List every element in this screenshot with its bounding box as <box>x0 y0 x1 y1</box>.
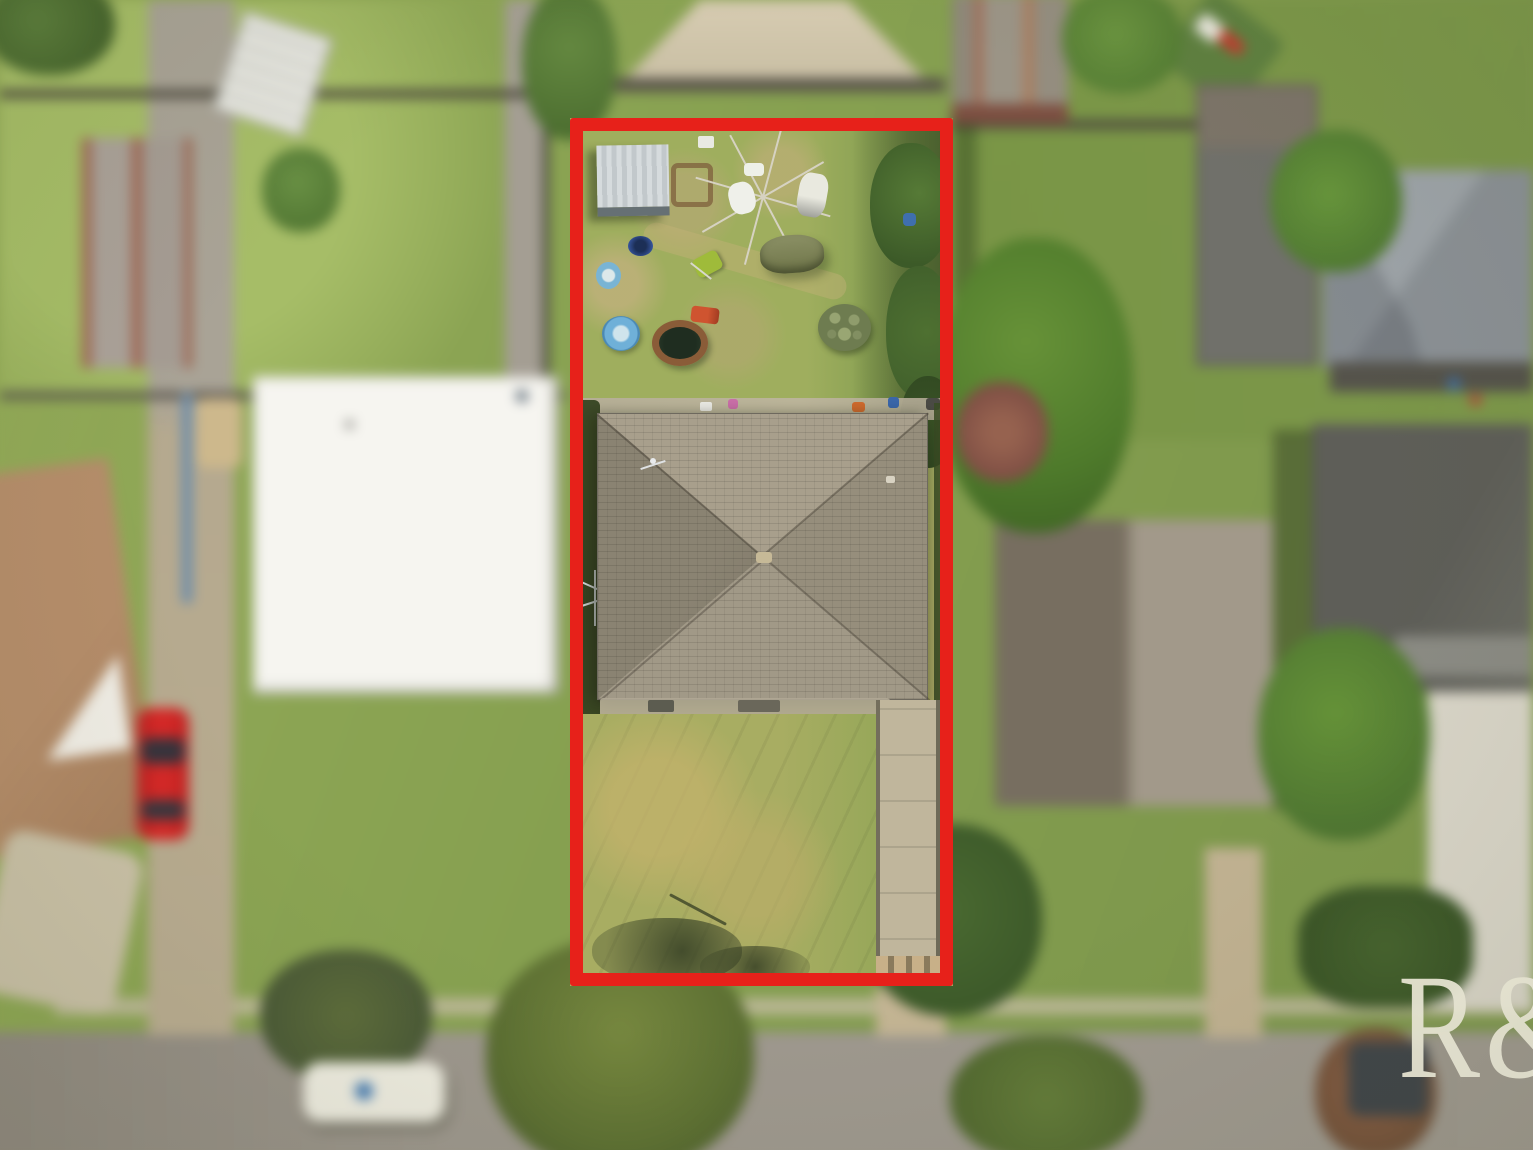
footpath-right-vertical <box>1205 848 1262 1038</box>
tree-centre-right-large <box>938 238 1133 533</box>
roof-ribs <box>995 520 1126 806</box>
tree-red-foliage <box>956 382 1048 482</box>
aerial-property-photo: R& <box>0 0 1533 1150</box>
yard-item-blue <box>1448 378 1460 390</box>
house-right-wall <box>1330 362 1533 392</box>
red-car <box>137 708 189 840</box>
yard-item-red <box>1470 395 1481 405</box>
agency-watermark: R& <box>1398 952 1533 1102</box>
street-bottom <box>0 1032 1533 1150</box>
tree <box>1270 130 1402 272</box>
sandpit <box>196 398 242 468</box>
white-roof-vent <box>345 420 354 429</box>
red-car-rear-window <box>141 800 185 820</box>
property-boundary-outline <box>570 118 953 986</box>
fence-blue <box>182 393 192 603</box>
white-roof-unit <box>516 390 528 402</box>
shed-weathered-top-right <box>952 0 1068 106</box>
building-white-flat <box>253 376 559 694</box>
shed-weathered-edge <box>952 104 1068 124</box>
tree <box>262 148 340 232</box>
red-car-windshield <box>141 738 185 764</box>
tree <box>950 1035 1142 1150</box>
white-car-street <box>303 1062 445 1122</box>
tree <box>1258 628 1430 840</box>
white-car-detail <box>355 1082 373 1100</box>
house-right-bottom-wall <box>1395 636 1533 676</box>
house-neighbour-right-roof <box>995 520 1273 806</box>
house-behind-fence <box>595 78 945 92</box>
building-left-long <box>82 138 192 368</box>
